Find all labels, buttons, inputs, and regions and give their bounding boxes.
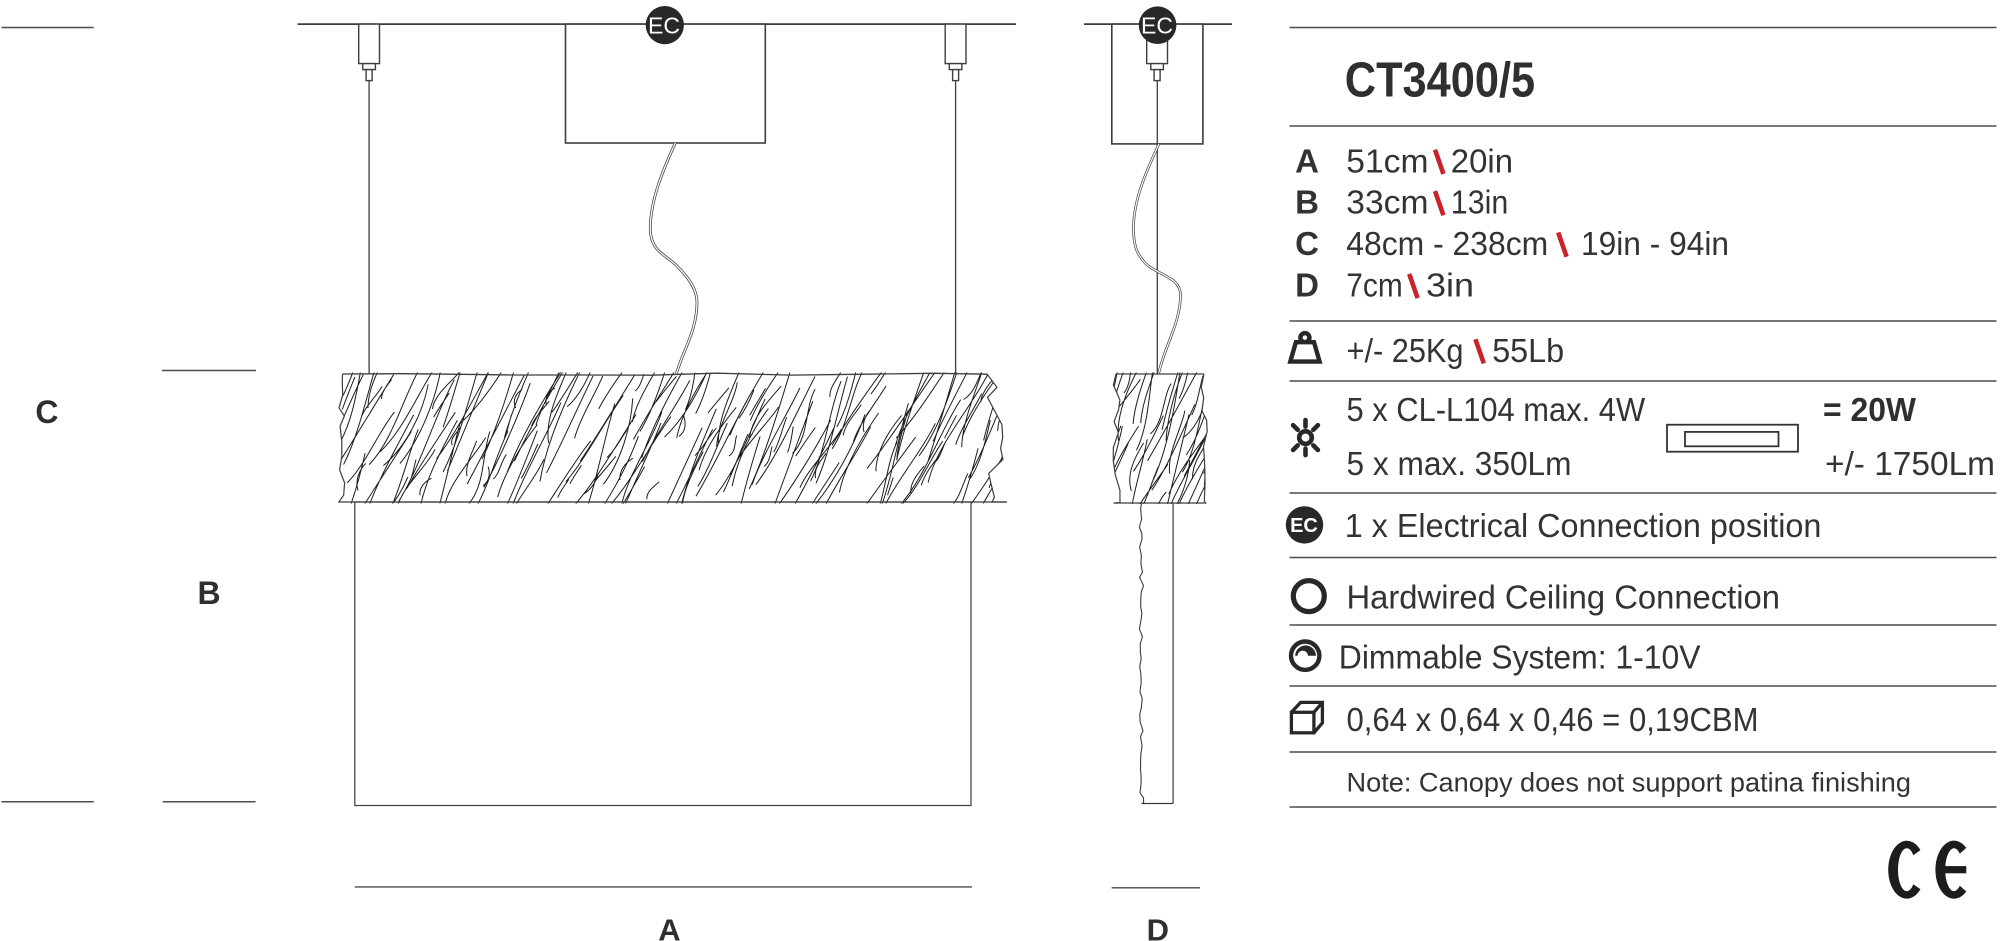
svg-text:20in: 20in xyxy=(1451,142,1513,179)
svg-text:1 x Electrical Connection posi: 1 x Electrical Connection position xyxy=(1345,507,1822,544)
svg-text:55Lb: 55Lb xyxy=(1492,332,1564,369)
svg-text:51cm: 51cm xyxy=(1346,142,1428,179)
svg-text:Note: Canopy does not support: Note: Canopy does not support patina fin… xyxy=(1347,767,1912,797)
svg-text:A: A xyxy=(658,912,680,941)
svg-text:EC: EC xyxy=(1141,12,1173,38)
svg-text:EC: EC xyxy=(648,12,680,38)
svg-text:C: C xyxy=(1295,225,1319,262)
svg-text:13in: 13in xyxy=(1451,184,1509,221)
svg-text:0,64 x 0,64 x 0,46 = 0,19CBM: 0,64 x 0,64 x 0,46 = 0,19CBM xyxy=(1347,701,1759,738)
svg-text:Hardwired Ceiling Connection: Hardwired Ceiling Connection xyxy=(1347,579,1781,616)
svg-text:C: C xyxy=(35,394,58,430)
svg-text:+/- 1750Lm: +/- 1750Lm xyxy=(1825,445,1995,482)
svg-text:Dimmable System: 1-10V: Dimmable System: 1-10V xyxy=(1339,638,1701,675)
svg-text:5 x max. 350Lm: 5 x max. 350Lm xyxy=(1347,445,1572,482)
svg-text:B: B xyxy=(1295,184,1319,221)
svg-text:B: B xyxy=(197,575,220,611)
svg-text:D: D xyxy=(1295,267,1319,304)
svg-text:3in: 3in xyxy=(1426,267,1474,304)
svg-text:A: A xyxy=(1295,142,1319,179)
svg-text:7cm: 7cm xyxy=(1346,267,1402,304)
svg-text:CT3400/5: CT3400/5 xyxy=(1345,54,1535,108)
svg-text:+/- 25Kg: +/- 25Kg xyxy=(1347,332,1464,369)
svg-text:EC: EC xyxy=(1290,515,1318,537)
svg-text:D: D xyxy=(1147,912,1169,941)
svg-text:33cm: 33cm xyxy=(1346,184,1428,221)
svg-text:19in - 94in: 19in - 94in xyxy=(1581,225,1729,262)
svg-text:48cm - 238cm: 48cm - 238cm xyxy=(1346,225,1548,262)
svg-text:= 20W: = 20W xyxy=(1823,391,1917,428)
svg-text:5 x CL-L104 max. 4W: 5 x CL-L104 max. 4W xyxy=(1347,391,1646,428)
